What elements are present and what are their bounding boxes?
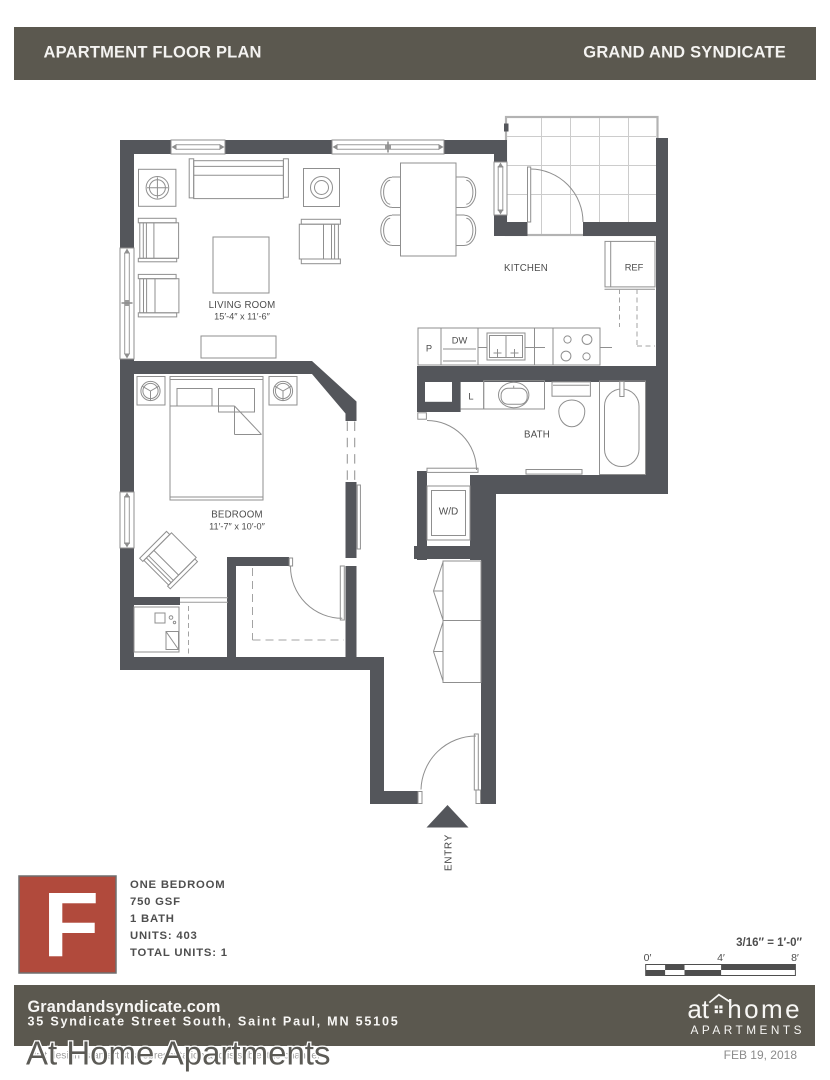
svg-text:4′: 4′	[717, 952, 725, 964]
svg-text:APARTMENTS: APARTMENTS	[690, 1023, 805, 1037]
svg-text:L: L	[468, 392, 473, 402]
svg-text:11′-7″ x 10′-0″: 11′-7″ x 10′-0″	[209, 522, 265, 532]
svg-text:APARTMENT FLOOR PLAN: APARTMENT FLOOR PLAN	[44, 44, 262, 62]
svg-text:W/D: W/D	[439, 507, 458, 518]
svg-text:UNITS: 403: UNITS: 403	[130, 930, 198, 942]
svg-text:35 Syndicate Street South, Sai: 35 Syndicate Street South, Saint Paul, M…	[28, 1015, 400, 1029]
svg-text:P: P	[426, 344, 432, 354]
svg-text:ENTRY: ENTRY	[444, 834, 455, 871]
svg-text:BATH: BATH	[524, 430, 550, 441]
svg-text:DW: DW	[452, 336, 468, 346]
svg-text:At Home Apartments: At Home Apartments	[26, 1035, 330, 1072]
svg-text:GRAND AND SYNDICATE: GRAND AND SYNDICATE	[583, 44, 786, 62]
svg-text:LIVING ROOM: LIVING ROOM	[209, 300, 276, 311]
svg-text:750 GSF: 750 GSF	[130, 896, 181, 908]
svg-text:15′-4″ x 11′-6″: 15′-4″ x 11′-6″	[214, 312, 270, 322]
svg-text:3/16″ = 1′-0″: 3/16″ = 1′-0″	[736, 937, 802, 949]
svg-text:REF: REF	[625, 263, 644, 273]
svg-text:at: at	[687, 994, 709, 1024]
svg-text:0′: 0′	[644, 952, 652, 964]
svg-text:ONE BEDROOM: ONE BEDROOM	[130, 879, 225, 891]
svg-text:TOTAL UNITS: 1: TOTAL UNITS: 1	[130, 947, 228, 959]
svg-text:home: home	[727, 994, 802, 1024]
svg-text:8′: 8′	[791, 952, 799, 964]
svg-text:FEB 19, 2018: FEB 19, 2018	[724, 1048, 798, 1062]
svg-text:BEDROOM: BEDROOM	[211, 510, 262, 521]
svg-text:Grandandsyndicate.com: Grandandsyndicate.com	[28, 998, 221, 1016]
svg-text:1 BATH: 1 BATH	[130, 913, 175, 925]
svg-text:KITCHEN: KITCHEN	[504, 263, 548, 274]
svg-text:F: F	[43, 874, 99, 976]
